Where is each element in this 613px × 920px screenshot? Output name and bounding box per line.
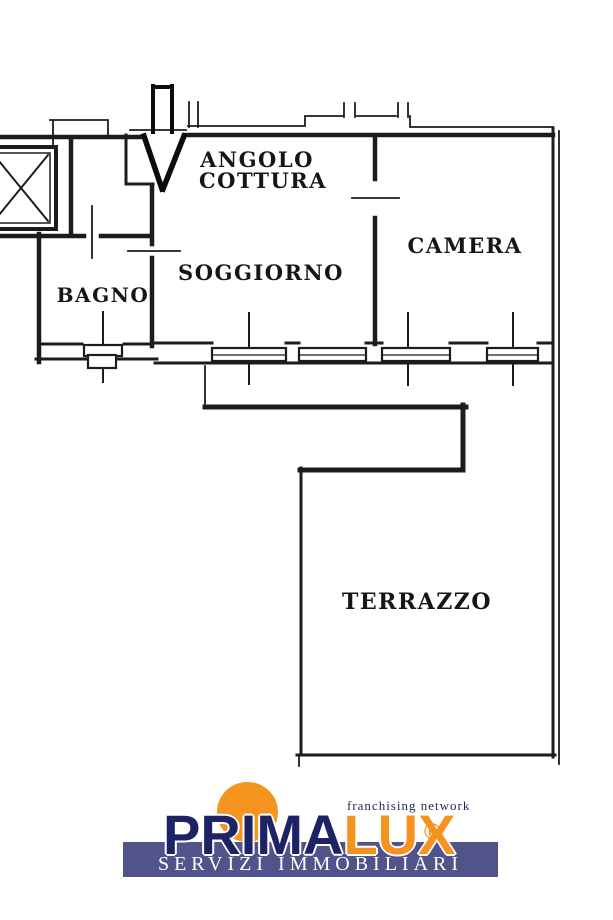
- parapet-and-landing-lines: [50, 102, 559, 766]
- room-label-camera: CAMERA: [407, 233, 522, 258]
- registered-trademark-icon: ®: [424, 821, 440, 843]
- elevator-shaft-icon: [0, 147, 56, 229]
- interior-walls: [36, 128, 555, 757]
- room-label-bagno: BAGNO: [57, 283, 150, 307]
- entrance-arrow-icon: [144, 86, 184, 189]
- door-marks: [92, 198, 399, 258]
- logo-subtitle: SERVIZI IMMOBILIARI: [123, 853, 498, 876]
- logo-tagline: franchising network: [347, 798, 470, 814]
- floor-plan-drawing: ANGOLO COTTURA SOGGIORNO CAMERA BAGNO TE…: [0, 0, 613, 790]
- windows: [84, 345, 538, 368]
- floor-plan-page: ANGOLO COTTURA SOGGIORNO CAMERA BAGNO TE…: [0, 0, 613, 920]
- terrace-walls: [205, 405, 466, 470]
- room-label-soggiorno: SOGGIORNO: [178, 260, 344, 285]
- room-label-terrazzo: TERRAZZO: [342, 589, 492, 615]
- room-label-angolo-cottura-line2: COTTURA: [199, 168, 327, 193]
